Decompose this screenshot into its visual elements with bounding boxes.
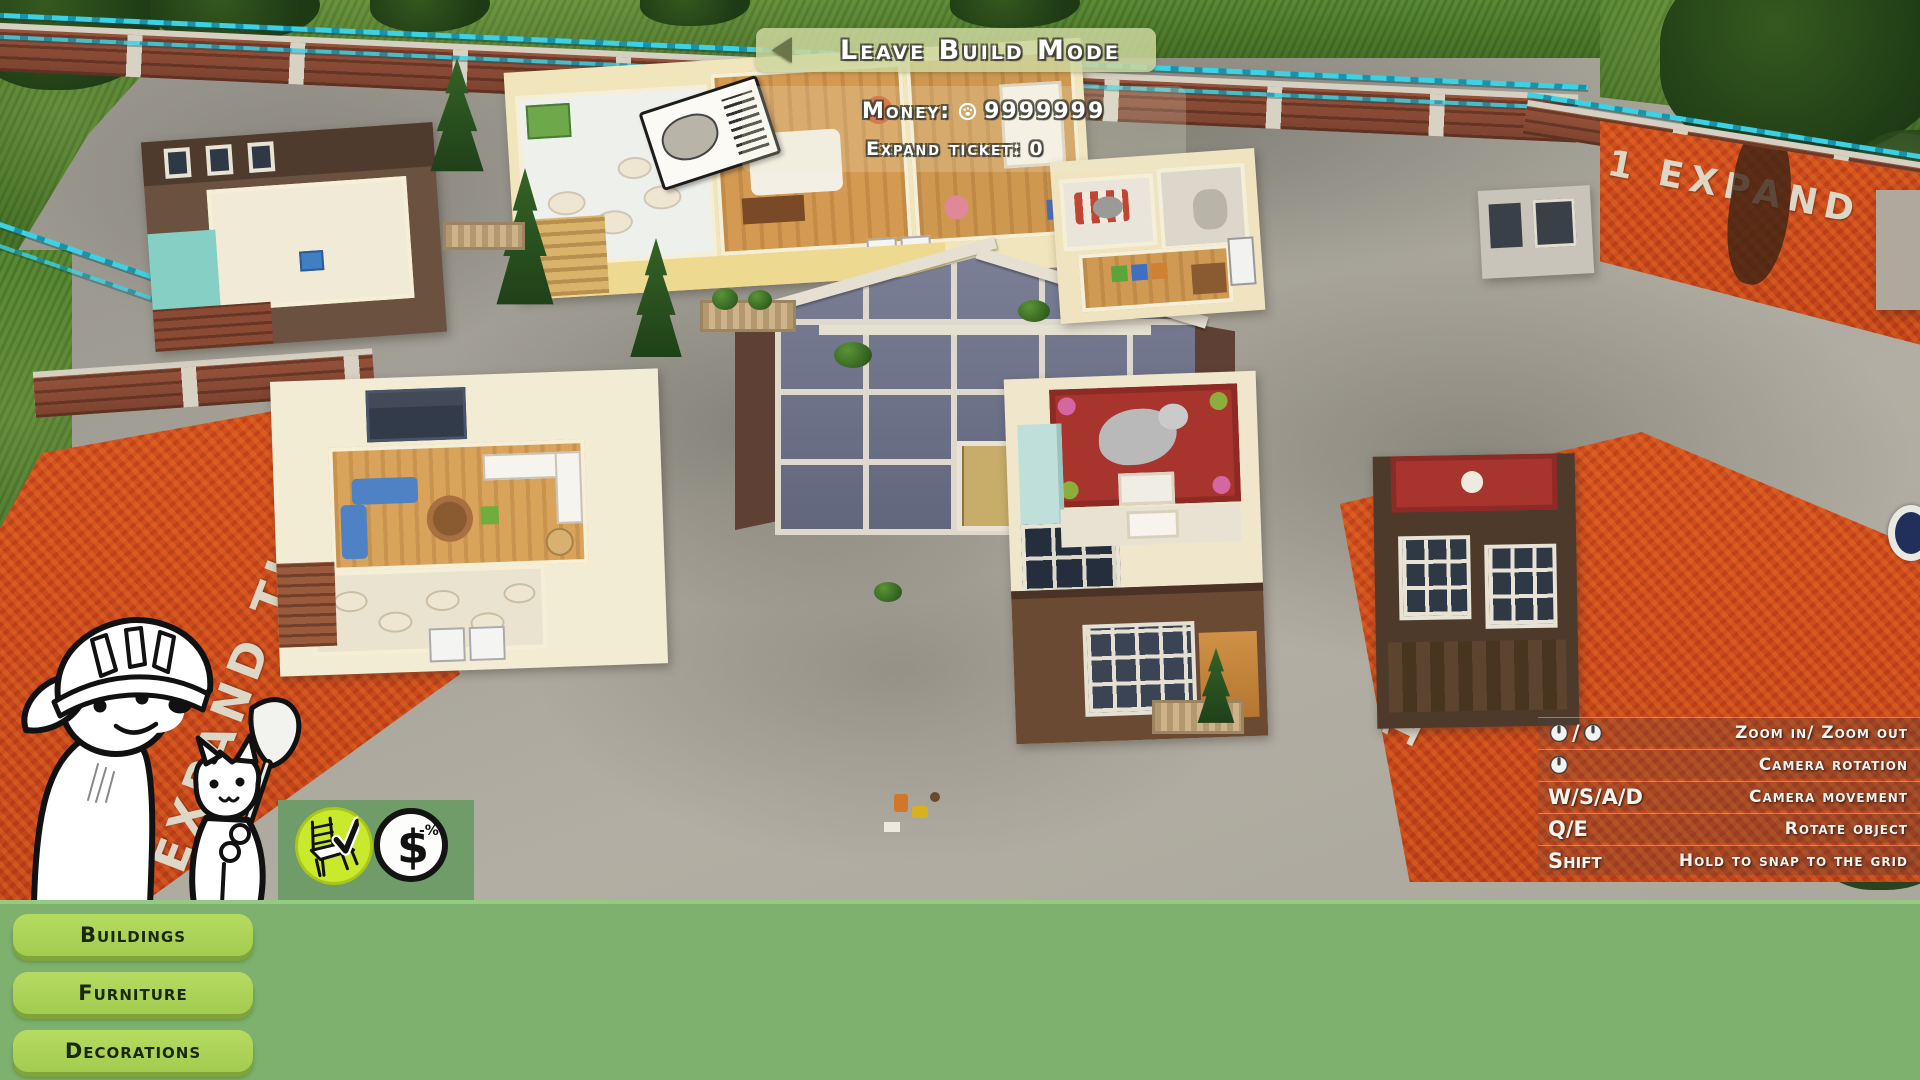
prop-cone	[894, 794, 908, 812]
shortcut-action: Camera rotation	[1759, 755, 1908, 775]
prop-paper	[884, 822, 900, 832]
mouse-wheel-icon	[1548, 722, 1570, 744]
game-screen: 1 EXPAND TICKET 1 EXPAND TICKET 1 EXPAND…	[0, 0, 1920, 1080]
back-arrow-icon	[772, 37, 792, 63]
coin-icon	[958, 102, 977, 121]
mouse-wheel-icon	[1582, 722, 1604, 744]
shortcut-row: W/S/A/DCamera movement	[1538, 781, 1920, 811]
building-bottom-left[interactable]	[270, 368, 668, 676]
money-value: 9999999	[984, 99, 1105, 124]
shortcut-row: / Zoom in/ Zoom out	[1538, 717, 1920, 747]
prop-toolbox	[912, 806, 928, 818]
bush	[834, 342, 872, 368]
svg-text:-%: -%	[419, 823, 439, 839]
mouse-wheel-icon	[1548, 754, 1570, 776]
expand-ticket-label: Expand ticket:	[866, 138, 1022, 160]
shortcut-keys: Q/E	[1548, 817, 1588, 841]
building-right-top[interactable]	[1050, 148, 1266, 324]
shortcut-row: Q/ERotate object	[1538, 813, 1920, 843]
money-display: Money: 9999999	[862, 99, 1105, 124]
mode-icon-tab: $ -%	[278, 800, 474, 905]
expand-ticket-value: 0	[1029, 138, 1044, 160]
leave-build-mode-button[interactable]: Leave Build Mode	[756, 28, 1156, 72]
prop	[930, 792, 940, 802]
shortcut-legend: / Zoom in/ Zoom out Camera rotationW/S/A…	[1538, 717, 1920, 877]
shortcut-keys: Shift	[1548, 849, 1602, 873]
shortcut-action: Hold to snap to the grid	[1679, 851, 1908, 871]
sell-mode-icon[interactable]: $ -%	[374, 808, 448, 882]
leave-build-mode-label: Leave Build Mode	[840, 35, 1121, 66]
shortcut-keys	[1548, 754, 1570, 776]
building-far-left[interactable]	[141, 122, 447, 352]
expand-ticket-display: Expand ticket: 0	[866, 138, 1045, 160]
category-button-buildings[interactable]: Buildings	[13, 914, 253, 956]
furniture-mode-icon[interactable]	[291, 803, 377, 889]
shortcut-keys: W/S/A/D	[1548, 785, 1643, 809]
shortcut-action: Zoom in/ Zoom out	[1735, 723, 1908, 743]
category-button-decorations[interactable]: Decorations	[13, 1030, 253, 1072]
money-label: Money:	[862, 99, 951, 124]
shortcut-row: Camera rotation	[1538, 749, 1920, 779]
shortcut-action: Camera movement	[1749, 787, 1908, 807]
category-button-furniture[interactable]: Furniture	[13, 972, 253, 1014]
shortcut-keys: /	[1548, 721, 1604, 745]
build-menu-panel: BuildingsFurnitureDecorations Back Lv.1	[0, 900, 1920, 1080]
building-on-expand-zone[interactable]	[1373, 453, 1580, 728]
shortcut-action: Rotate object	[1785, 819, 1908, 839]
building-bottom-right[interactable]	[1004, 371, 1269, 745]
bush	[1018, 300, 1050, 322]
planter	[443, 222, 525, 250]
building-far-right-sliver	[1876, 190, 1920, 310]
bush	[874, 582, 902, 602]
building-right-edge[interactable]	[1478, 185, 1594, 279]
shortcut-row: ShiftHold to snap to the grid	[1538, 845, 1920, 875]
